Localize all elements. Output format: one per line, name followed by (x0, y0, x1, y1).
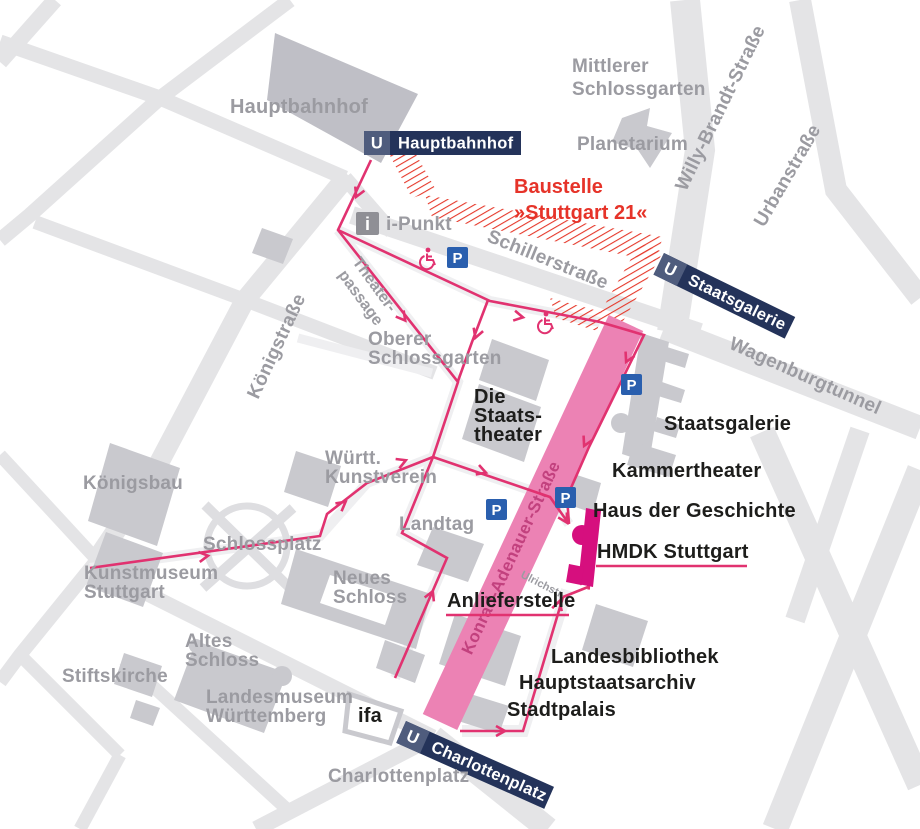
label-landtag: Landtag (399, 514, 474, 535)
svg-text:Württemberg: Württemberg (206, 706, 326, 727)
svg-text:Baustelle: Baustelle (514, 176, 603, 198)
label-i-punkt: i-Punkt (386, 214, 452, 235)
label-hauptstaatsarchiv: Hauptstaatsarchiv (519, 672, 696, 694)
map-canvas: Konrad-Adenauer-Straße i (0, 0, 920, 829)
parking-icon: P (447, 247, 468, 268)
parking-icon: P (555, 487, 576, 508)
parking-icon: P (621, 374, 642, 395)
svg-text:Schloss: Schloss (185, 650, 259, 671)
label-schlossplatz: Schlossplatz (203, 534, 322, 555)
svg-text:»Stuttgart 21«: »Stuttgart 21« (514, 202, 647, 224)
label-landesmuseum: Landesmuseum (206, 687, 353, 708)
street-label-urbanstrasse: Urbanstraße (750, 121, 825, 230)
label-kammertheater: Kammertheater (612, 460, 761, 482)
street-label-wagenburgtunnel: Wagenburgtunnel (726, 333, 884, 419)
info-point-icon: i (356, 212, 379, 235)
label-hmdk-stuttgart: HMDK Stuttgart (597, 541, 749, 563)
label-ifa: ifa (358, 705, 383, 727)
svg-text:Kunstverein: Kunstverein (325, 467, 437, 488)
svg-text:P: P (452, 250, 462, 267)
station-label: Hauptbahnhof (398, 135, 514, 153)
label-charlottenplatz-area: Charlottenplatz (328, 766, 469, 787)
label-altes-schloss: Altes (185, 631, 232, 652)
label-haus-der-geschichte: Haus der Geschichte (593, 500, 796, 522)
svg-text:Schloss: Schloss (333, 587, 407, 608)
label-koenigsbau: Königsbau (83, 473, 183, 494)
u-symbol: U (371, 135, 383, 153)
label-stadtpalais: Stadtpalais (507, 699, 616, 721)
station-badge-hauptbahnhof: U Hauptbahnhof (364, 131, 521, 155)
svg-text:P: P (626, 377, 636, 394)
label-stiftskirche: Stiftskirche (62, 666, 168, 687)
construction-label: Baustelle »Stuttgart 21« (514, 176, 647, 224)
svg-text:P: P (491, 502, 501, 519)
svg-text:theater: theater (474, 424, 542, 446)
label-anlieferstelle: Anlieferstelle (447, 590, 575, 612)
city-map: Konrad-Adenauer-Straße i (0, 0, 920, 829)
label-kunstmuseum: Kunstmuseum (84, 563, 218, 584)
label-landesbibliothek: Landesbibliothek (551, 646, 719, 668)
label-kunstverein: Württ. (325, 448, 381, 469)
label-hauptbahnhof-area: Hauptbahnhof (230, 96, 368, 118)
label-neues-schloss: Neues (333, 568, 391, 589)
parking-icon: P (486, 499, 507, 520)
label-staatsgalerie: Staatsgalerie (664, 413, 791, 435)
svg-text:Schlossgarten: Schlossgarten (368, 348, 502, 369)
svg-text:Stuttgart: Stuttgart (84, 582, 165, 603)
svg-text:Schlossgarten: Schlossgarten (572, 79, 706, 100)
svg-text:P: P (560, 490, 570, 507)
label-oberer-schlossgarten: Oberer (368, 329, 432, 350)
info-icon-glyph: i (365, 214, 370, 234)
label-planetarium: Planetarium (577, 134, 688, 155)
label-mittlerer-schlossgarten: Mittlerer (572, 56, 649, 77)
